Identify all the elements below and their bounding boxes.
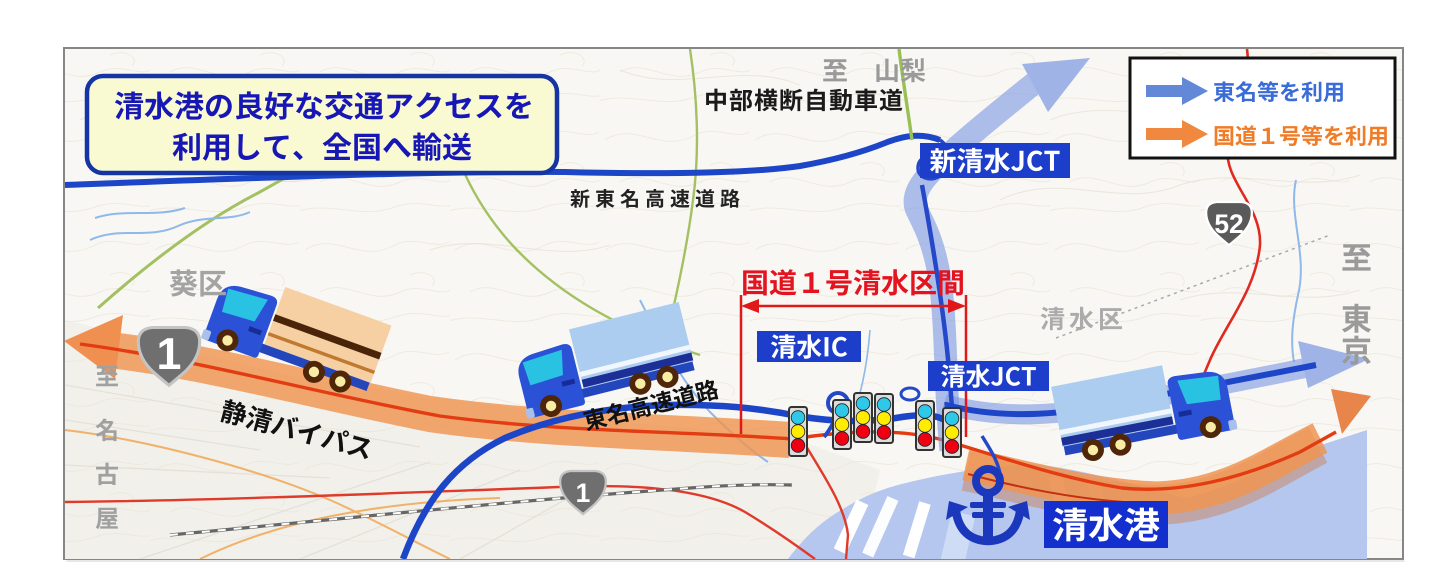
svg-text:52: 52	[1214, 209, 1243, 239]
svg-text:1: 1	[576, 478, 591, 508]
svg-text:1: 1	[157, 328, 182, 379]
